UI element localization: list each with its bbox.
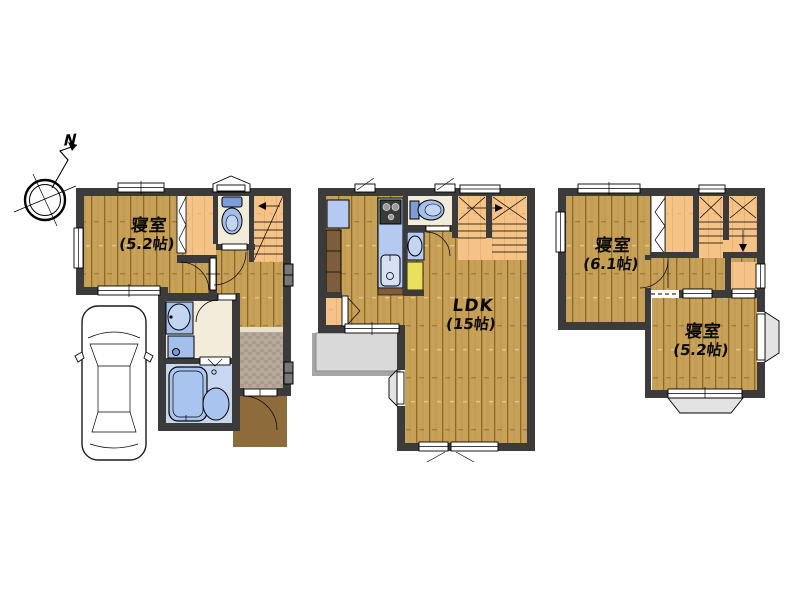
room-name: 寝室 <box>552 237 674 256</box>
window-icon-3f-landing <box>756 264 765 288</box>
bay-window-icon-2f <box>389 370 404 406</box>
floor2-ldk-label: LDK (15帖) <box>410 297 534 333</box>
floor3-bedroom2-label: 寝室 (5.2帖) <box>640 323 764 359</box>
bay-window-icon-1f-toilet <box>213 176 250 192</box>
window-icon-2f-bottom-2 <box>451 442 498 462</box>
floorplan-canvas: 寝室 (5.2帖) LDK (15帖) 寝室 (6.1帖) 寝室 (5.2帖) … <box>0 0 800 600</box>
room-size: (5.2帖) <box>640 342 762 359</box>
window-icon-1f-bedroom-bottom <box>98 284 160 297</box>
car-icon <box>75 306 153 460</box>
window-icon-1f-left <box>74 228 83 268</box>
bay-window-icon-3f-bottom <box>668 398 743 413</box>
kitchen-cabinet-icon <box>326 230 341 293</box>
refrigerator-icon <box>327 200 349 228</box>
floor3-plan <box>556 182 779 413</box>
window-icon-2f-top-2 <box>435 178 455 192</box>
window-icon-3f-top <box>578 182 640 195</box>
dashed-opening-icon <box>651 290 679 298</box>
floor3-bedroom1-label: 寝室 (6.1帖) <box>550 237 674 273</box>
washing-machine-icon <box>168 336 194 358</box>
window-icon-2f-top-1 <box>355 178 375 192</box>
room-size: (5.2帖) <box>86 236 208 253</box>
floor1-entrance-tile <box>240 327 283 390</box>
toilet-icon-1f <box>222 197 242 234</box>
window-icon-3f-bedroom2-top-2 <box>732 289 755 298</box>
room-name: 寝室 <box>88 217 210 236</box>
room-name: 寝室 <box>642 323 764 342</box>
toilet-icon-2f <box>410 200 444 220</box>
door-opening-2f-toilet <box>426 226 450 231</box>
balcony <box>312 333 400 376</box>
floor3-landing <box>731 262 757 290</box>
floor1-porch <box>233 396 287 447</box>
kitchen-counter-icon <box>378 198 403 295</box>
door-opening-1f-washroom <box>218 294 236 300</box>
kitchen-sink-icon <box>381 255 400 286</box>
washbasin-icon-1f <box>166 302 193 334</box>
window-icon-2f-stairs <box>460 185 500 193</box>
window-icon-1f-top <box>118 181 164 194</box>
room-size: (6.1帖) <box>550 256 672 273</box>
window-icon-3f-bedroom2-top-1 <box>683 289 712 298</box>
compass-north-label: N <box>64 130 77 149</box>
room-name: LDK <box>412 297 534 316</box>
bathtub-icon <box>169 367 207 421</box>
floorplan-drawing <box>0 0 800 600</box>
window-icon-2f-bottom-1 <box>419 442 448 462</box>
window-icon-3f-stairs <box>699 185 725 193</box>
washbasin-icon-2f <box>407 232 424 260</box>
room-size: (15帖) <box>410 316 532 333</box>
storage-unit-yellow <box>407 262 423 290</box>
door-opening-1f-toilet <box>222 244 247 250</box>
compass-icon <box>14 142 77 226</box>
window-icon-2f-balcony <box>345 322 399 335</box>
stove-icon <box>380 200 401 224</box>
floor2-closet <box>326 298 342 326</box>
floor1-bedroom-label: 寝室 (5.2帖) <box>86 217 210 253</box>
bath-folding-door-icon <box>200 357 230 366</box>
